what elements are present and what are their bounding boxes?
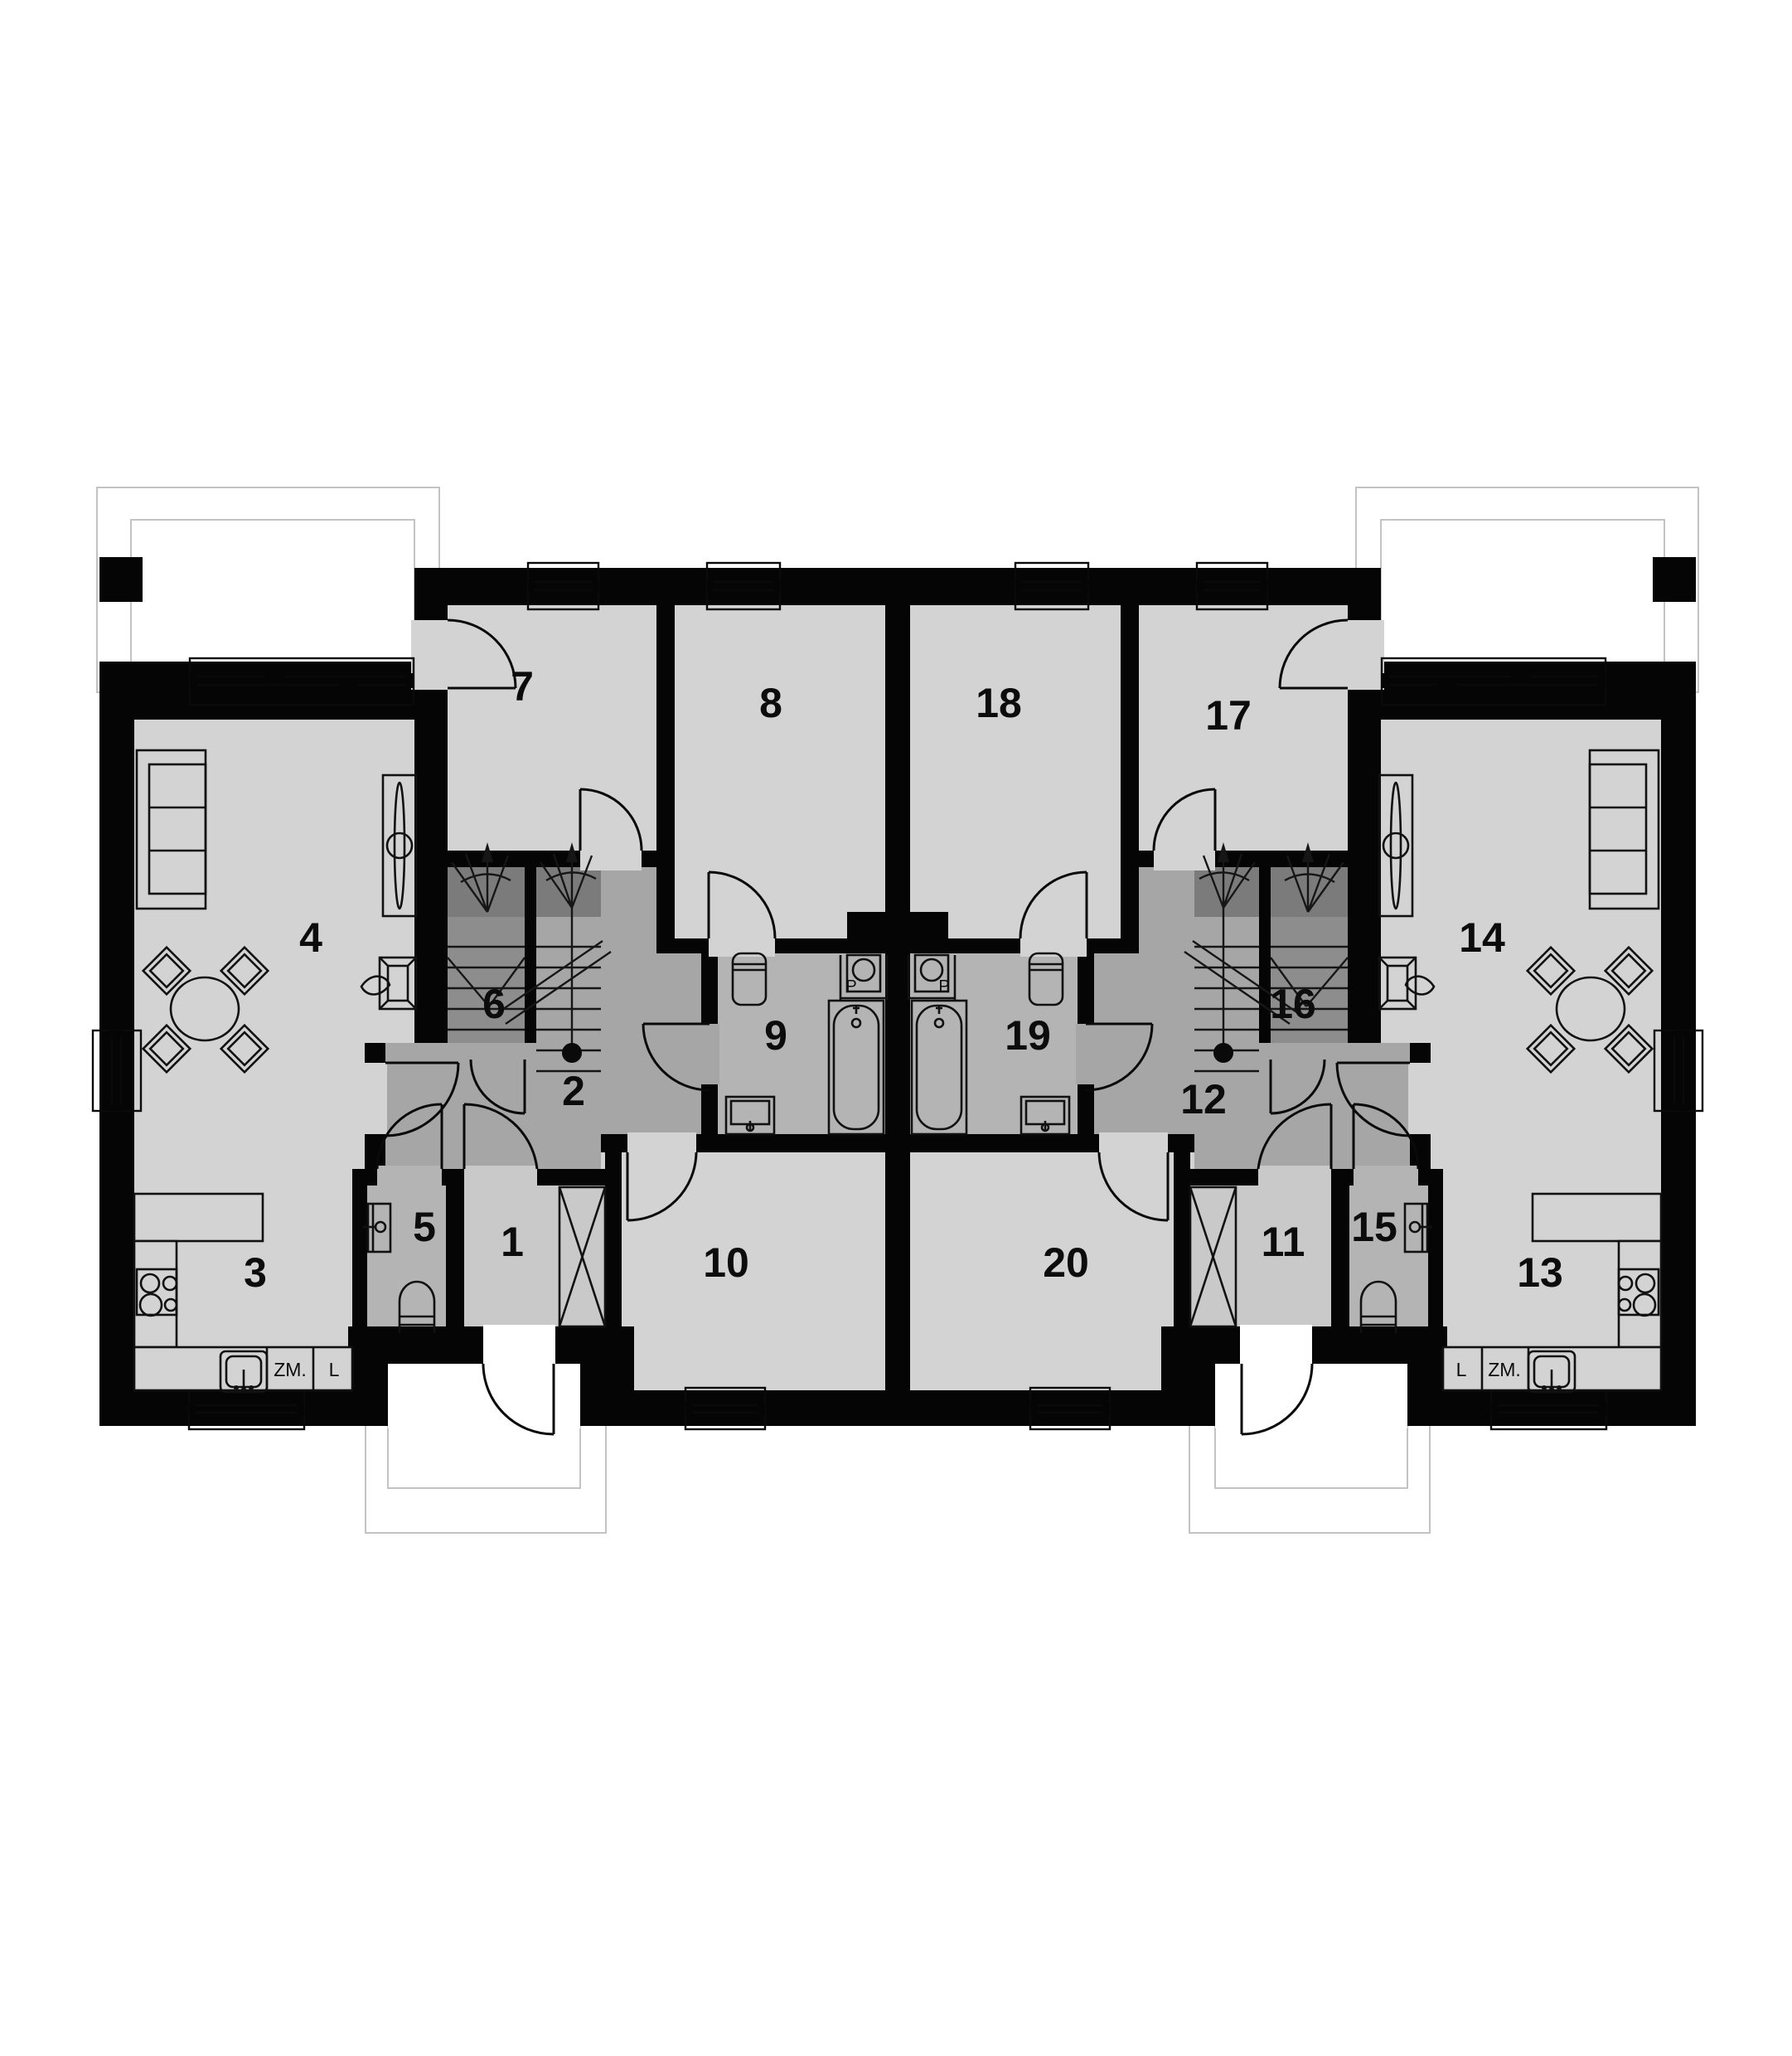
room-label-13: 13: [1517, 1249, 1563, 1296]
floor-plan-svg: 1234567891011121314151617181920ZM.LLZM.P…: [0, 0, 1792, 2056]
room-label-11: 11: [1262, 1219, 1305, 1265]
fixture-label-p: P: [938, 977, 949, 996]
room-label-9: 9: [764, 1012, 787, 1059]
room-label-8: 8: [759, 680, 782, 726]
floor-plan-page: 1234567891011121314151617181920ZM.LLZM.P…: [0, 0, 1792, 2056]
room-label-2: 2: [562, 1068, 585, 1114]
fixture-label-l: L: [329, 1359, 340, 1380]
room-label-15: 15: [1351, 1204, 1397, 1250]
fixture-label-l: L: [1456, 1359, 1467, 1380]
room-label-7: 7: [511, 663, 534, 710]
fixture-label-p: P: [845, 977, 856, 996]
room-label-6: 6: [482, 981, 506, 1027]
room-label-17: 17: [1205, 692, 1252, 739]
sofa: [137, 750, 206, 909]
room-label-5: 5: [413, 1204, 436, 1250]
terrace-outline: [97, 487, 439, 692]
room-label-3: 3: [244, 1249, 267, 1296]
room-label-10: 10: [703, 1239, 749, 1286]
room-label-1: 1: [501, 1219, 524, 1265]
room-label-20: 20: [1043, 1239, 1089, 1286]
room-label-12: 12: [1180, 1076, 1227, 1123]
room-label-16: 16: [1270, 981, 1316, 1027]
room-label-18: 18: [976, 680, 1022, 726]
fixture-label-zm: ZM.: [1488, 1359, 1521, 1380]
room-label-14: 14: [1459, 914, 1505, 961]
room-label-19: 19: [1005, 1012, 1051, 1059]
fixture-label-zm: ZM.: [274, 1359, 307, 1380]
room-label-4: 4: [299, 914, 322, 961]
